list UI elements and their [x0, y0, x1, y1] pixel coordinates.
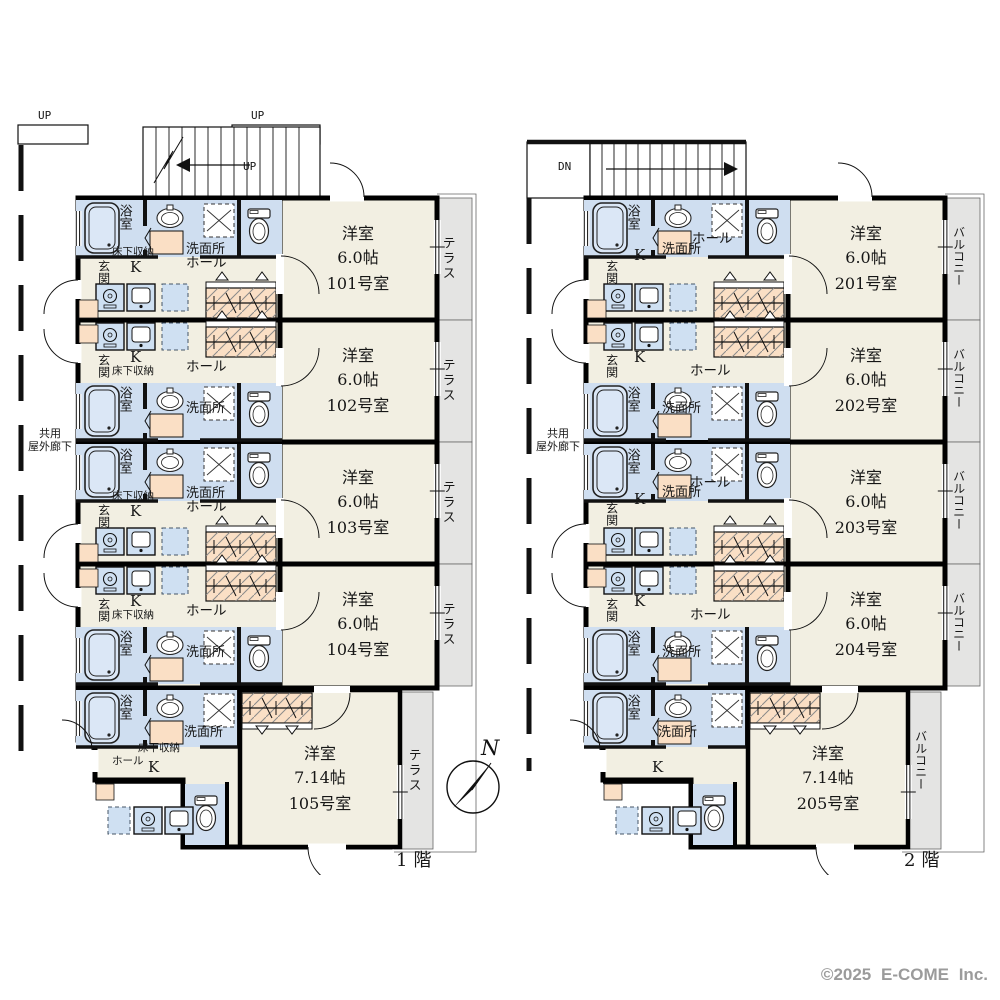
bath-label: 浴室: [117, 204, 131, 230]
washroom-label: 洗面所: [662, 402, 701, 416]
compass-north-label: N: [481, 736, 499, 760]
stair-arrow-label: UP: [243, 161, 256, 173]
room-size: 6.0帖: [298, 616, 418, 633]
corridor-label: 共用: [28, 428, 72, 440]
stair-up-label: UP: [251, 110, 264, 122]
room-number: 202号室: [806, 398, 926, 415]
entrance-label: 玄関: [97, 354, 110, 378]
room-number: 103号室: [298, 520, 418, 537]
room-size: 7.14帖: [260, 770, 380, 787]
copyright-text: ©2025 E-COME Inc.: [738, 965, 988, 985]
room-type: 洋室: [260, 746, 380, 763]
hall-label: ホール: [690, 364, 731, 378]
corridor-label: 共用: [536, 428, 580, 440]
terrace-label: テラス: [440, 480, 454, 525]
hall-label: ホール: [186, 256, 227, 270]
bath-label: 浴室: [117, 694, 131, 720]
storage-label: 床下収納: [112, 247, 154, 258]
storage-label: 床下収納: [112, 610, 154, 621]
entrance-label: 玄関: [605, 260, 618, 284]
room-type: 洋室: [298, 470, 418, 487]
terrace-label: テラス: [440, 358, 454, 403]
corridor-label: 屋外廊下: [529, 441, 587, 453]
entrance-label: 玄関: [97, 504, 110, 528]
bath-label: 浴室: [625, 630, 639, 656]
corridor-label: 屋外廊下: [21, 441, 79, 453]
floorplan-canvas: UP UP UP 共用 屋外廊下 浴室 洗面所 玄関 床下収納 K ホール 洋室…: [0, 0, 1000, 1000]
stair-down-label: DN: [558, 161, 571, 173]
terrace-label: テラス: [440, 236, 454, 281]
room-type: 洋室: [298, 348, 418, 365]
terrace-label: テラス: [406, 748, 420, 793]
hall-label: ホール: [690, 476, 731, 490]
entrance-label: 玄関: [97, 598, 110, 622]
room-type: 洋室: [768, 746, 888, 763]
washroom-label: 洗面所: [662, 646, 701, 660]
entrance-label: 玄関: [605, 598, 618, 622]
room-type: 洋室: [806, 470, 926, 487]
room-number: 204号室: [806, 642, 926, 659]
kitchen-label: K: [634, 492, 645, 508]
compass-icon: [440, 733, 510, 828]
storage-label: 床下収納: [138, 743, 180, 754]
entrance-label: 玄関: [605, 502, 618, 526]
room-number: 102号室: [298, 398, 418, 415]
balcony-label: バルコニー: [952, 348, 965, 408]
kitchen-label: K: [130, 260, 141, 276]
room-number: 101号室: [298, 276, 418, 293]
bath-label: 浴室: [625, 448, 639, 474]
washroom-label: 洗面所: [184, 726, 223, 740]
room-size: 6.0帖: [806, 616, 926, 633]
floor-label-1f: 1階: [396, 852, 437, 871]
kitchen-label: K: [130, 594, 141, 610]
bath-label: 浴室: [625, 386, 639, 412]
washroom-label: 洗面所: [658, 726, 697, 740]
room-number: 104号室: [298, 642, 418, 659]
room-type: 洋室: [806, 348, 926, 365]
entrance-label: 玄関: [605, 354, 618, 378]
hall-label: ホール: [112, 756, 144, 767]
kitchen-label: K: [634, 594, 645, 610]
kitchen-label: K: [634, 350, 645, 366]
hall-label: ホール: [692, 232, 733, 246]
bath-label: 浴室: [625, 204, 639, 230]
hall-label: ホール: [186, 500, 227, 514]
hall-label: ホール: [186, 360, 227, 374]
kitchen-label: K: [130, 504, 141, 520]
bath-label: 浴室: [117, 630, 131, 656]
room-type: 洋室: [298, 226, 418, 243]
kitchen-label: K: [652, 760, 663, 776]
washroom-label: 洗面所: [186, 646, 225, 660]
room-type: 洋室: [806, 226, 926, 243]
room-size: 7.14帖: [768, 770, 888, 787]
room-size: 6.0帖: [298, 494, 418, 511]
room-number: 205号室: [768, 796, 888, 813]
storage-label: 床下収納: [112, 366, 154, 377]
room-type: 洋室: [298, 592, 418, 609]
hall-label: ホール: [690, 608, 731, 622]
bath-label: 浴室: [117, 448, 131, 474]
room-size: 6.0帖: [298, 372, 418, 389]
stair-up-label: UP: [38, 110, 51, 122]
balcony-label: バルコニー: [914, 730, 927, 790]
room-size: 6.0帖: [806, 494, 926, 511]
room-number: 105号室: [260, 796, 380, 813]
kitchen-label: K: [130, 350, 141, 366]
storage-label: 床下収納: [112, 491, 154, 502]
balcony-label: バルコニー: [952, 592, 965, 652]
room-type: 洋室: [806, 592, 926, 609]
bath-label: 浴室: [625, 694, 639, 720]
kitchen-label: K: [148, 760, 159, 776]
kitchen-label: K: [634, 248, 645, 264]
room-number: 203号室: [806, 520, 926, 537]
balcony-label: バルコニー: [952, 470, 965, 530]
hall-label: ホール: [186, 604, 227, 618]
entrance-label: 玄関: [97, 260, 110, 284]
washroom-label: 洗面所: [186, 402, 225, 416]
bath-label: 浴室: [117, 386, 131, 412]
room-size: 6.0帖: [298, 250, 418, 267]
room-size: 6.0帖: [806, 372, 926, 389]
room-size: 6.0帖: [806, 250, 926, 267]
terrace-label: テラス: [440, 602, 454, 647]
floor-label-2f: 2階: [904, 852, 945, 871]
room-number: 201号室: [806, 276, 926, 293]
balcony-label: バルコニー: [952, 226, 965, 286]
